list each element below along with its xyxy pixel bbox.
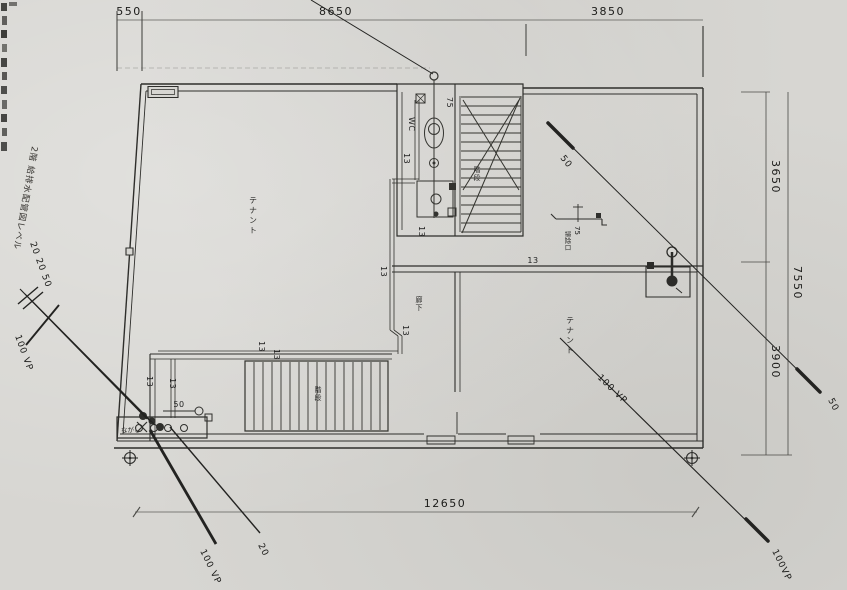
drain-100vp-leader <box>560 338 768 542</box>
riser-drop <box>667 276 678 287</box>
label-wc-13-lower: 13 <box>417 226 426 237</box>
label-cleanout-name: 掃除口 <box>563 230 571 251</box>
label-sink: ながし <box>121 425 141 434</box>
sw-20-leader <box>170 427 260 533</box>
room-stair-upper: 階段 <box>473 165 481 182</box>
label-west-13-left: 13 <box>145 376 154 387</box>
room-tenant-right: テナント <box>566 316 575 356</box>
label-100vp-mid: 100 VP <box>595 373 629 406</box>
door-threshold-left <box>427 436 455 444</box>
label-cleanout-75: 75 <box>573 226 581 235</box>
label-20-sw: 20 <box>255 542 270 558</box>
label-west-13-right: 13 <box>168 378 177 389</box>
dim-top-8650: 8650 <box>319 5 353 18</box>
squat-toilet <box>431 194 441 204</box>
left-wall-outer <box>117 84 141 441</box>
label-50-end: 50 <box>825 397 840 414</box>
valve-blob-3 <box>156 423 164 431</box>
binder-edge-marks <box>1 2 17 151</box>
room-wc: WC <box>407 117 416 132</box>
label-20-20-50: 20 20 50 <box>27 241 53 290</box>
label-corridor-13: 13 <box>527 256 538 265</box>
supply-leader-trio <box>18 287 155 425</box>
dim-top-550: 550 <box>116 5 142 18</box>
door-threshold-right <box>508 436 534 444</box>
room-corridor: 廊下 <box>415 295 423 312</box>
label-100vp-corner: 100VP <box>769 548 793 583</box>
dim-right-7550: 7550 <box>791 266 804 300</box>
junction-box <box>449 183 456 190</box>
dim-bottom-12650: 12650 <box>424 497 467 510</box>
room-stair-lower: 階段 <box>314 385 322 402</box>
label-main-13-lower: 13 <box>401 325 410 336</box>
label-100vp-sw: 100 VP <box>197 548 222 586</box>
room-tenant-left: テナント <box>249 196 258 236</box>
left-wall-inner <box>123 91 146 434</box>
pipe-end-cap <box>195 407 203 415</box>
dim-top-3850: 3850 <box>591 5 625 18</box>
label-50-start: 50 <box>558 154 574 171</box>
stair-run-line <box>462 98 520 233</box>
label-branch-13-right: 13 <box>272 349 281 360</box>
label-sink-50: 50 <box>173 400 184 409</box>
window <box>148 87 178 98</box>
wc-supply-pipe <box>392 100 419 183</box>
cleanout-symbol <box>551 204 607 225</box>
floor-plan-drawing: 2階 給排水配管図レベル 550 8650 3850 3650 7550 390… <box>0 0 847 590</box>
sw-100vp-leader <box>150 430 216 544</box>
wall-sleeve <box>126 248 133 255</box>
stair-upper <box>461 96 521 233</box>
vent-leader <box>311 0 433 74</box>
margin-title: 2階 給排水配管図レベル <box>11 145 40 250</box>
label-main-13-upper: 13 <box>379 266 388 277</box>
benchmark-symbol-left <box>122 450 138 466</box>
main-riser-pipes <box>158 179 402 418</box>
label-wc-75: 75 <box>445 97 454 108</box>
scanned-plan-sheet: 2階 給排水配管図レベル 550 8650 3850 3650 7550 390… <box>0 0 847 590</box>
label-wc-13-upper: 13 <box>402 153 411 164</box>
benchmark-symbol-right <box>684 450 700 466</box>
dim-right-3900: 3900 <box>769 345 782 379</box>
dim-right-3650: 3650 <box>769 160 782 194</box>
label-branch-13-left: 13 <box>257 341 266 352</box>
